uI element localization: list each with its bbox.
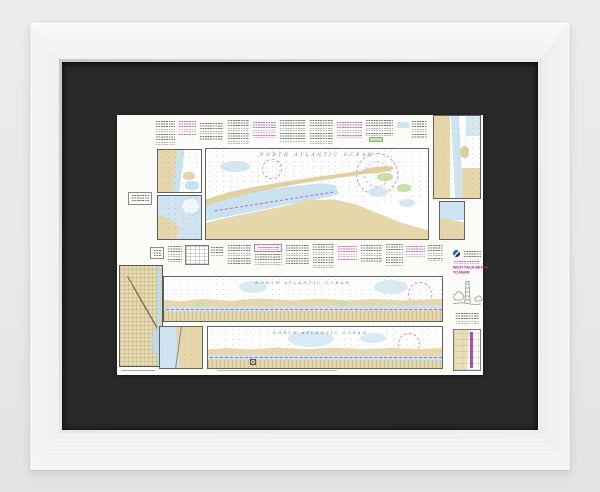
- note-highlight-blue: [397, 122, 409, 128]
- strip-chart-1: NORTH ATLANTIC OCEAN: [163, 276, 443, 322]
- note-highlight-green: [369, 137, 383, 142]
- edition-text-block: [455, 313, 479, 326]
- x-marker: [250, 359, 256, 365]
- note-block: [227, 120, 249, 146]
- small-inset-map: [439, 201, 465, 240]
- note-lines: [153, 250, 161, 256]
- note-block: [155, 121, 175, 145]
- note-lines: [131, 195, 149, 202]
- soundings: [160, 327, 202, 368]
- note-block: [411, 121, 427, 139]
- ocean-label: NORTH ATLANTIC OCEAN: [260, 154, 375, 159]
- picture-frame: NORTH ATLANTIC OCEAN: [30, 22, 570, 470]
- note-table: [185, 245, 209, 265]
- frame-rail-top: [30, 22, 570, 59]
- city-street-inset: [119, 265, 163, 367]
- mat-board: NORTH ATLANTIC OCEAN: [62, 62, 538, 430]
- chart-title-line2: TO MIAMI: [453, 270, 470, 275]
- margin-fine-print: [217, 370, 337, 371]
- product-photo: { "photo": { "background_color": "#eaeae…: [0, 0, 600, 492]
- note-block: [285, 245, 309, 265]
- shallow-patch: [399, 199, 415, 207]
- note-block: [360, 245, 382, 263]
- note-block: [427, 245, 443, 261]
- note-block: [405, 246, 425, 258]
- shallow-patch: [368, 187, 388, 197]
- note-block: [227, 245, 251, 265]
- note-block: [385, 244, 403, 266]
- strip2-side-inset: [159, 326, 203, 369]
- soundings: [158, 196, 201, 239]
- boxed-note: [128, 192, 152, 205]
- note-block: [336, 122, 362, 138]
- note-block: [365, 120, 393, 136]
- agency-text-lines: [463, 251, 481, 258]
- margin-fine-print: [121, 370, 155, 371]
- frame-rail-bottom: [30, 433, 570, 470]
- main-chart-panel: NORTH ATLANTIC OCEAN: [205, 148, 429, 240]
- note-block: [337, 246, 357, 260]
- note-block: [178, 121, 196, 135]
- compass-rose: [262, 159, 282, 179]
- note-block: [167, 246, 182, 262]
- coverage-highlight-strip: [470, 332, 474, 369]
- frame-rail-right: [541, 22, 570, 470]
- side-panel-palm-beach-inlet: [433, 115, 481, 199]
- note-block: [279, 120, 305, 142]
- inset-map-lake-worth: [157, 195, 202, 240]
- shoal-patch: [220, 161, 250, 172]
- chart-title-line1: WEST PALM BEACH: [453, 265, 488, 270]
- title-series-line: [453, 261, 479, 264]
- marsh-patch: [397, 184, 411, 192]
- soundings: [440, 202, 464, 239]
- icw-magenta-line: [166, 309, 442, 310]
- frame-rail-left: [30, 22, 59, 470]
- note-block: [199, 123, 223, 141]
- ocean-label: NORTH ATLANTIC OCEAN: [272, 331, 368, 335]
- icw-magenta-line: [210, 357, 442, 358]
- heading-lines: [257, 247, 279, 250]
- note-block: [309, 120, 333, 146]
- street-texture: [208, 360, 442, 368]
- inset-map-loxahatchee: [157, 149, 202, 193]
- ocean-shallow-patch: [374, 280, 408, 294]
- note-block: [254, 254, 282, 266]
- street-texture: [164, 311, 442, 321]
- lighthouse-illustration: [450, 279, 484, 311]
- soundings: [434, 116, 480, 198]
- note-block: [252, 122, 276, 138]
- noaa-logo: [453, 250, 460, 257]
- marsh-patch: [194, 302, 206, 307]
- strip-chart-2: NORTH ATLANTIC OCEAN: [207, 326, 443, 369]
- chart-title-block: WEST PALM BEACH TO MIAMI: [453, 261, 485, 279]
- marsh-patch: [377, 173, 393, 181]
- waterway-bend: [152, 330, 158, 354]
- ocean-label: NORTH ATLANTIC OCEAN: [255, 281, 351, 285]
- note-block: [312, 244, 334, 268]
- soundings: [158, 150, 201, 192]
- chart-paper: NORTH ATLANTIC OCEAN: [117, 115, 483, 375]
- boxed-note: [150, 247, 164, 259]
- magenta-heading-box: [254, 244, 282, 252]
- coverage-diagram-inset: [453, 329, 481, 371]
- note-block: [210, 247, 224, 257]
- coverage-grid: [454, 330, 480, 370]
